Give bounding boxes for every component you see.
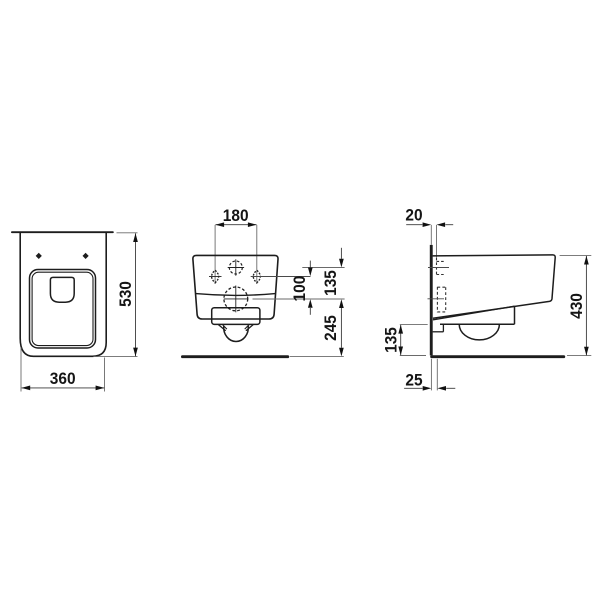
svg-text:135: 135 xyxy=(382,327,401,353)
svg-text:245: 245 xyxy=(321,315,340,341)
svg-text:180: 180 xyxy=(223,206,249,225)
svg-text:20: 20 xyxy=(405,206,422,225)
svg-text:360: 360 xyxy=(50,369,76,388)
svg-text:25: 25 xyxy=(405,371,422,390)
svg-text:100: 100 xyxy=(290,276,309,302)
svg-text:430: 430 xyxy=(567,293,586,319)
svg-text:135: 135 xyxy=(321,270,340,296)
svg-text:530: 530 xyxy=(117,281,136,307)
